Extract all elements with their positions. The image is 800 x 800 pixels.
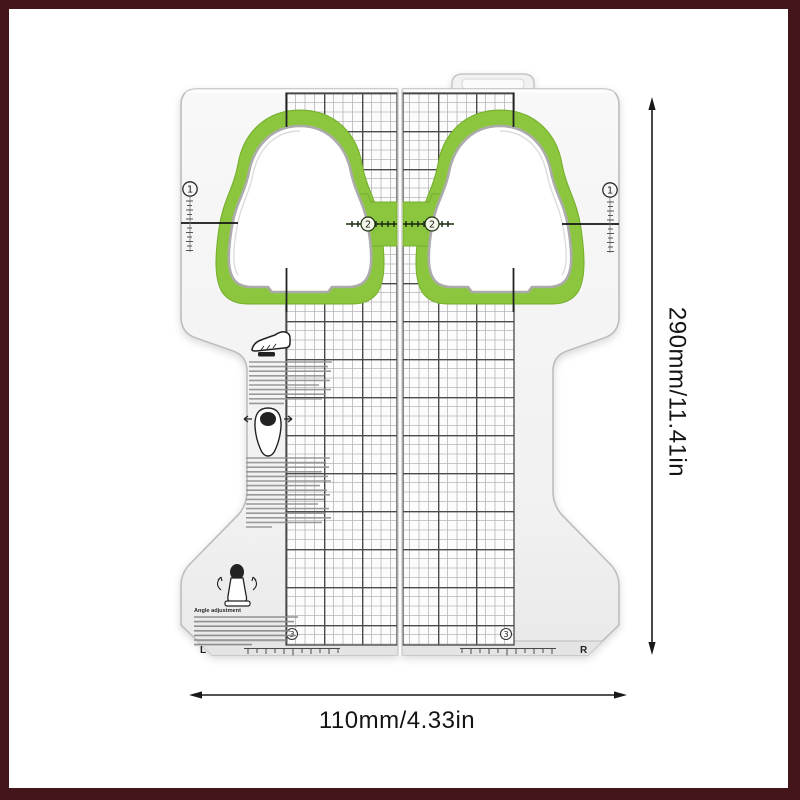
width-dimension: 110mm/4.33in — [189, 691, 627, 734]
height-dimension-label: 290mm/11.41in — [664, 307, 691, 477]
instruction-text-c — [194, 617, 298, 645]
step-marker-3-right: 3 — [503, 630, 508, 639]
angle-adjustment-title: Angle adjustment — [194, 608, 241, 614]
width-dimension-label: 110mm/4.33in — [319, 707, 475, 734]
step-marker-2-left: 2 — [365, 219, 371, 230]
step-marker-1-right: 1 — [607, 186, 613, 197]
center-seam — [397, 89, 402, 655]
product-photo-canvas: 1 1 2 2 3 3 L R — [0, 0, 800, 800]
step-marker-3-left: 3 — [289, 630, 294, 639]
product-illustration: 1 1 2 2 3 3 L R — [0, 0, 800, 800]
foot-mark-left: L — [200, 645, 206, 656]
step-marker-1-left: 1 — [187, 185, 193, 196]
foot-mark-right: R — [580, 645, 588, 656]
height-dimension: 290mm/11.41in — [648, 97, 690, 655]
step-marker-2-right: 2 — [429, 219, 435, 230]
